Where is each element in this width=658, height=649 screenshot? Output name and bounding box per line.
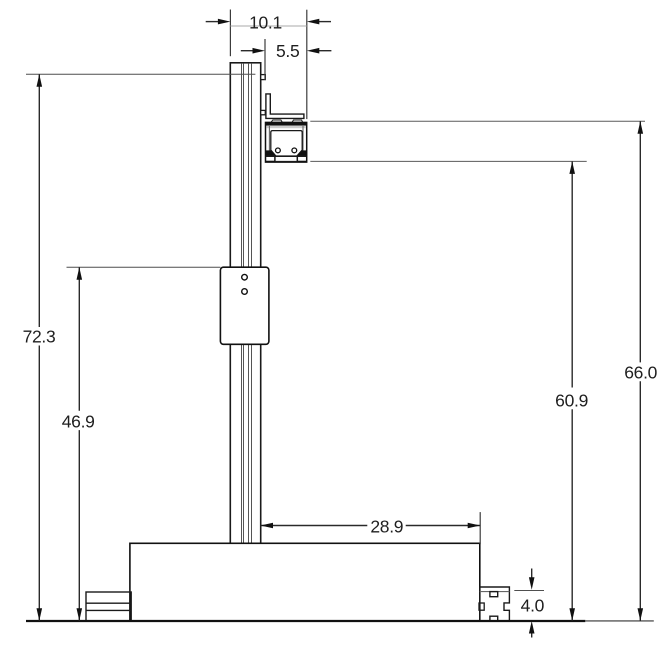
svg-text:28.9: 28.9 xyxy=(370,516,403,536)
svg-text:5.5: 5.5 xyxy=(276,41,299,61)
svg-text:10.1: 10.1 xyxy=(249,13,282,33)
svg-text:72.3: 72.3 xyxy=(23,326,56,346)
svg-text:66.0: 66.0 xyxy=(624,362,657,382)
svg-text:46.9: 46.9 xyxy=(62,411,95,431)
svg-text:4.0: 4.0 xyxy=(521,595,545,615)
svg-text:60.9: 60.9 xyxy=(555,390,588,410)
